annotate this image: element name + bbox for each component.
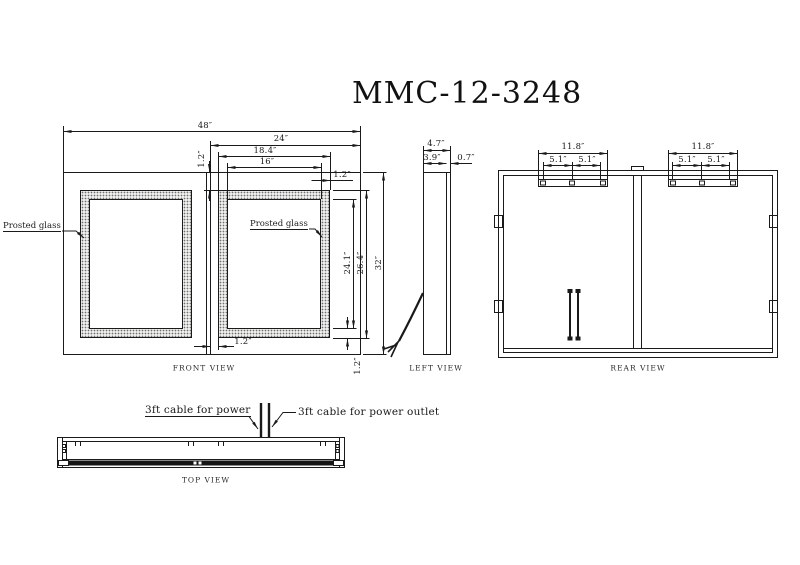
cable-outlet-label: 3ft cable for power outlet xyxy=(298,406,439,418)
glass-note-right: Prosted glass xyxy=(250,219,308,230)
cable-power-label: 3ft cable for power xyxy=(145,404,251,417)
rear-view-linework xyxy=(495,150,778,358)
right-door-frosted-frame xyxy=(218,190,330,338)
glass-note-left: Prosted glass xyxy=(3,221,61,232)
left-door-glass xyxy=(89,199,183,329)
blueprint-canvas: MMC-12-3248 xyxy=(0,0,800,565)
left-view-linework xyxy=(384,146,472,357)
left-door-frosted-frame xyxy=(80,190,192,338)
drawing-title: MMC-12-3248 xyxy=(352,76,582,111)
